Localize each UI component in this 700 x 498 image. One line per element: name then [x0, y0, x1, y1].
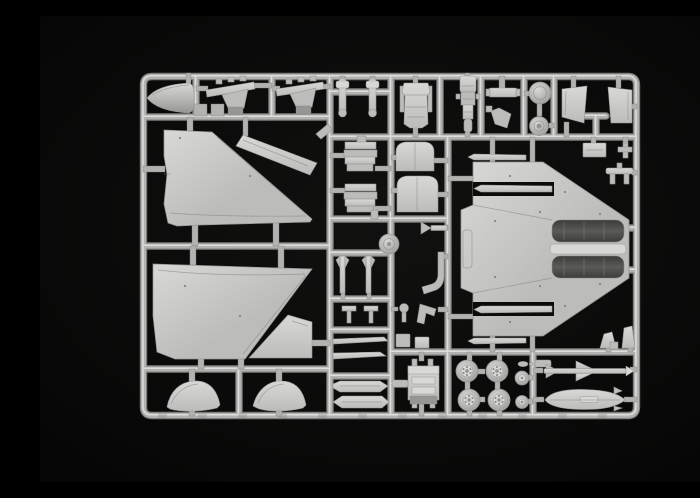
part-seat-back: Ejection seat back: [400, 83, 432, 128]
wheel: [456, 360, 478, 382]
sprue-illustration: Nose cone (radome) Intake splitter plate…: [40, 16, 700, 482]
wheel: [458, 389, 480, 411]
wheel: [488, 389, 510, 411]
part-intake-covers: Intake trunk covers: [396, 142, 438, 212]
sprue-photo: Photograph of a light grey injection-mou…: [40, 16, 700, 482]
wheel: [486, 360, 508, 382]
